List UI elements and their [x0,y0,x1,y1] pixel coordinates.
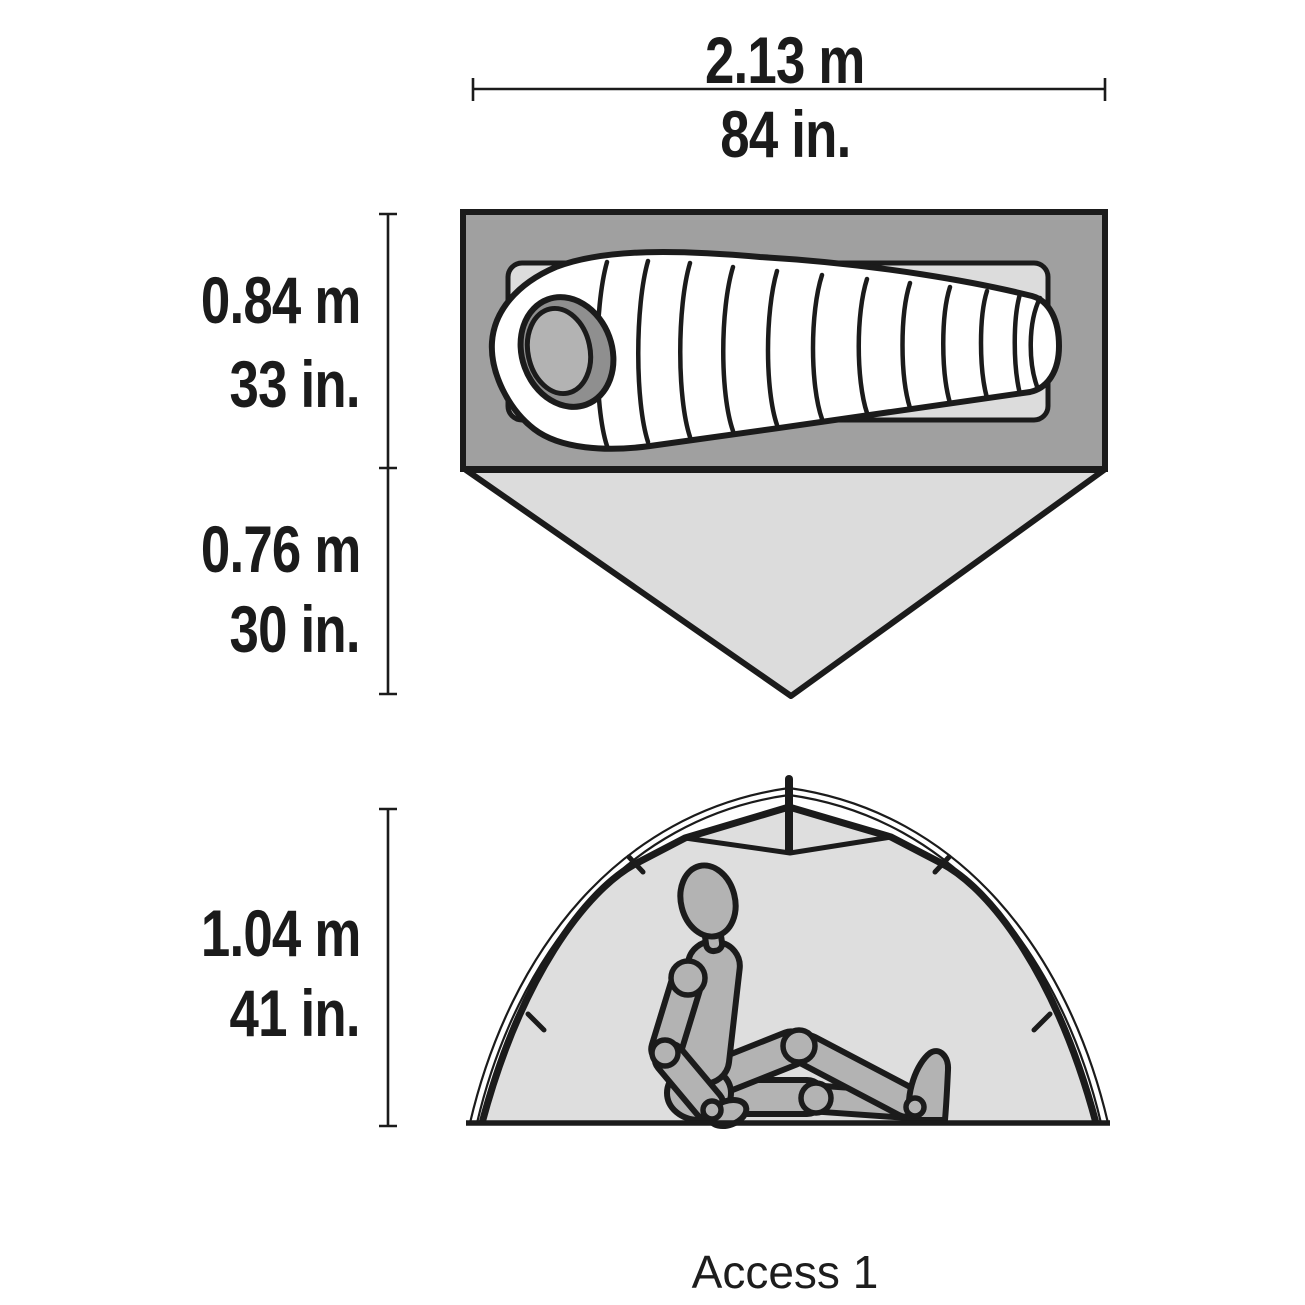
length-metric-value: 2.13 m [705,27,865,93]
height-metric-label: 1.04 m [0,900,360,966]
length-imperial-value: 84 in. [720,101,850,167]
vestibule-imperial-value: 30 in. [230,596,360,662]
length-metric-label: 2.13 m [585,27,985,93]
vestibule-metric-value: 0.76 m [200,516,360,582]
width-metric-value: 0.84 m [200,267,360,333]
vestibule-shape [466,470,1104,696]
vestibule-imperial-label: 30 in. [0,596,360,662]
tent-top-view [463,212,1105,696]
width-imperial-value: 33 in. [230,351,360,417]
dimension-line-height [379,809,397,1126]
tent-front-view [466,779,1110,1131]
product-name: Access 1 [585,1249,985,1295]
knee-joint-near [801,1083,831,1113]
height-imperial-value: 41 in. [230,980,360,1046]
vestibule-metric-label: 0.76 m [0,516,360,582]
length-imperial-label: 84 in. [585,101,985,167]
height-metric-value: 1.04 m [200,900,360,966]
knee-joint-far [783,1030,815,1062]
ankle-joint [906,1098,924,1116]
height-imperial-label: 41 in. [0,980,360,1046]
wrist-joint [703,1101,721,1119]
shoulder-joint [671,961,705,995]
elbow-joint [652,1040,678,1066]
dimension-line-width-vestibule [379,214,397,694]
width-imperial-label: 33 in. [0,351,360,417]
tent-spec-diagram: 2.13 m 84 in. 0.84 m 33 in. 0.76 m 30 in… [0,0,1305,1305]
width-metric-label: 0.84 m [0,267,360,333]
